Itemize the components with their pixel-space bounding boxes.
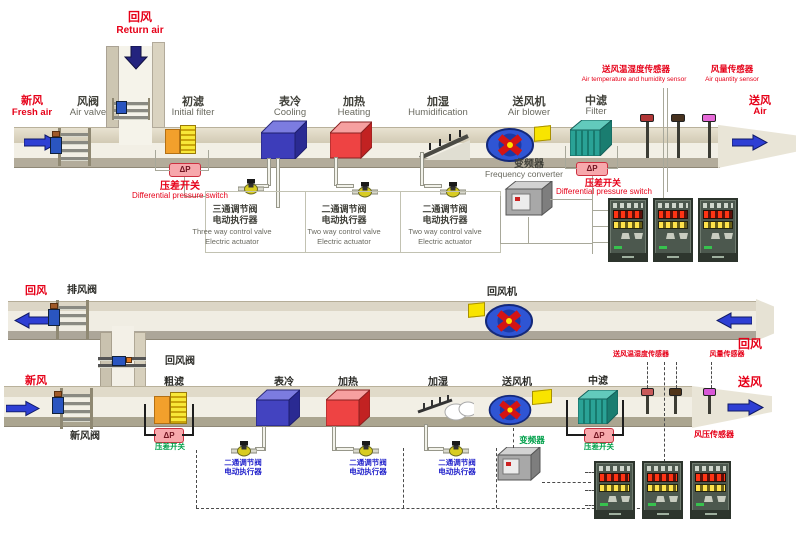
air-valve-post	[88, 128, 91, 166]
pressure-switch-left-label-en: Differential pressure switch	[115, 192, 245, 201]
wire	[155, 150, 156, 171]
temp-humidity-sensor-probe	[671, 114, 685, 158]
air-quantity-sensor-probe	[702, 114, 716, 158]
fresh-air-label: 新风	[12, 375, 60, 387]
controller-panel[interactable]	[690, 461, 731, 519]
air-quantity-sensor-label-en: Air quantity sensor	[694, 76, 770, 83]
up-button[interactable]	[608, 496, 617, 502]
supply-air-right-label: 送风	[730, 376, 770, 389]
dashed-wire	[496, 448, 497, 508]
controller-buttons[interactable]	[703, 232, 733, 240]
return-inlet-arrow-icon	[716, 312, 752, 329]
return-air-valve-label: 回风阀	[156, 356, 204, 367]
sensor-head	[641, 388, 654, 396]
sensor-head	[703, 388, 716, 396]
controller-status-led	[704, 246, 712, 249]
fresh-air-label-en: Fresh air	[0, 108, 64, 119]
temp-humidity-sensor-probe	[641, 388, 654, 414]
return-air-arrow-icon	[124, 46, 148, 70]
blower-outlet	[534, 125, 551, 142]
controller-buttons[interactable]	[695, 495, 726, 503]
heating-label: 加热	[326, 377, 370, 388]
sensor-head	[669, 388, 682, 396]
controller-red-display	[695, 473, 726, 482]
controller-panel[interactable]	[594, 461, 635, 519]
wire	[192, 404, 194, 436]
air-pressure-sensor-label: 风压传感器	[686, 431, 742, 440]
return-air-damper-actuator	[112, 356, 126, 366]
dashed-wire	[664, 362, 665, 462]
pressure-switch-box: ΔP	[154, 428, 184, 443]
down-button[interactable]	[621, 496, 630, 502]
controller-red-display	[658, 210, 688, 219]
pipe	[334, 157, 338, 186]
coarse-filter-label: 粗滤	[152, 377, 196, 388]
mid-filter	[570, 120, 612, 156]
brand-mark	[657, 513, 669, 515]
controller-status-led	[696, 503, 704, 506]
controller-panel[interactable]	[608, 198, 648, 262]
heating-coil	[326, 388, 370, 426]
controller-panel[interactable]	[698, 198, 738, 262]
wire	[592, 242, 609, 243]
brand-mark	[705, 513, 717, 515]
fresh-air-valve-label: 新风阀	[58, 431, 112, 442]
up-button[interactable]	[666, 233, 675, 239]
controller-yellow-display	[647, 484, 678, 492]
pressure-switch-label: 压差开关	[578, 443, 620, 451]
controller-yellow-display	[658, 221, 688, 229]
controller-footer	[610, 253, 646, 260]
controller-indicator-row	[613, 203, 643, 208]
valve-group-label: 二通调节阀	[307, 204, 381, 214]
dashed-wire	[647, 362, 648, 388]
sensor-stem	[646, 120, 649, 158]
controller-status-led	[648, 503, 656, 506]
sensor-head	[640, 114, 654, 122]
temp-humidity-sensor-label-en: Air temperature and humidity sensor	[570, 76, 698, 83]
fresh-air-valve-blade	[63, 394, 90, 397]
dashed-wire	[542, 482, 591, 483]
return-air-right-label: 回风	[730, 338, 770, 351]
controller-footer	[655, 253, 691, 260]
brand-mark	[609, 513, 621, 515]
valve-group-label: Electric actuator	[308, 238, 380, 246]
controller-buttons[interactable]	[658, 232, 688, 240]
controller-red-display	[703, 210, 733, 219]
pressure-switch-box: ΔP	[576, 162, 608, 176]
controller-status-led	[659, 246, 667, 249]
controller-footer	[596, 510, 633, 517]
temp-humidity-sensor-probe	[669, 388, 682, 414]
down-button[interactable]	[634, 233, 643, 239]
wire	[550, 199, 592, 200]
air-quantity-sensor-probe	[703, 388, 716, 414]
supply-fan-outlet	[532, 389, 552, 405]
return-damper-blade	[114, 116, 148, 119]
fresh-air-valve-actuator	[52, 397, 64, 414]
controller-buttons[interactable]	[599, 495, 630, 503]
air-quantity-sensor-label: 风量传感器	[702, 351, 752, 359]
wire	[663, 88, 664, 198]
controller-indicator-row	[647, 466, 678, 471]
exhaust-valve-post	[86, 300, 89, 339]
cooling-coil	[261, 117, 307, 159]
valve-group-label: 三通调节阀	[198, 204, 272, 214]
dashed-wire	[711, 362, 712, 388]
wire	[592, 226, 609, 227]
fresh-air-valve-blade	[63, 410, 90, 413]
coarse-filter-frame	[154, 396, 170, 424]
valve-group-label: Electric actuator	[196, 238, 268, 246]
air-blower-label-en: Air blower	[500, 108, 558, 119]
sensor-head	[702, 114, 716, 122]
return-air-damper-cap	[126, 357, 132, 363]
wire	[155, 170, 170, 171]
sensor-stem	[708, 394, 711, 414]
mid-filter-label-en: Filter	[578, 107, 614, 118]
air-quantity-sensor-label-zh: 风量传感器	[698, 65, 766, 75]
up-button[interactable]	[711, 233, 720, 239]
sensor-stem	[708, 120, 711, 158]
return-air-label-zh: 回风	[112, 11, 168, 24]
air-valve-label-en: Air valve	[58, 108, 118, 119]
fresh-air-valve-blade	[63, 418, 90, 421]
return-air-label: 回风	[12, 285, 60, 297]
controller-indicator-row	[695, 466, 726, 471]
wire	[144, 434, 156, 436]
controller-yellow-display	[695, 484, 726, 492]
down-button[interactable]	[679, 233, 688, 239]
initial-filter-label-en: Initial filter	[158, 108, 228, 119]
heating-coil	[330, 119, 372, 159]
sensor-stem	[646, 394, 649, 414]
cooling-coil	[256, 388, 300, 426]
wire	[500, 243, 592, 244]
bottom-diagram: ΔP ΔP	[0, 270, 800, 539]
wire	[622, 400, 624, 436]
valve-group-label: Three way control valve	[184, 228, 280, 236]
pressure-switch-right-label-en: Differential pressure switch	[546, 188, 662, 197]
two-way-valve-icon	[353, 438, 379, 457]
pipe	[267, 158, 271, 186]
exhaust-valve-actuator	[48, 309, 60, 326]
top-diagram: ΔP ΔP	[0, 0, 800, 270]
brand-mark	[712, 256, 724, 258]
wire	[500, 196, 501, 243]
valve-group-label: 电动执行器	[428, 468, 486, 476]
wire	[566, 434, 586, 436]
controller-yellow-display	[703, 221, 733, 229]
riser-right-wall	[134, 332, 146, 388]
controller-yellow-display	[599, 484, 630, 492]
initial-filter-frame	[165, 129, 180, 154]
return-damper-post	[148, 98, 150, 120]
wire	[182, 434, 194, 436]
valve-group-label: 二通调节阀	[408, 204, 482, 214]
valve-group-label: Electric actuator	[409, 238, 481, 246]
cooling-label: 表冷	[262, 377, 306, 388]
dashed-wire	[676, 362, 677, 388]
temp-humidity-sensor-label: 送风温湿度传感器	[610, 351, 672, 359]
fresh-air-valve-post	[90, 388, 93, 429]
valve-group-label: 电动执行器	[214, 468, 272, 476]
sensor-stem	[677, 120, 680, 158]
wire	[592, 210, 609, 211]
humidifier	[416, 394, 474, 424]
humidification-label: 加湿	[416, 377, 460, 388]
valve-group-label: 电动执行器	[198, 215, 272, 225]
initial-filter-media	[180, 125, 196, 154]
down-button[interactable]	[724, 233, 733, 239]
controller-footer	[700, 253, 736, 260]
hvac-monitoring-diagram: ΔP ΔP	[0, 0, 800, 539]
humidification-label-en: Humidification	[396, 108, 480, 119]
exhaust-valve-label: 排风阀	[54, 285, 110, 296]
supply-fan-label: 送风机	[490, 377, 544, 388]
wire	[617, 146, 618, 168]
coarse-filter-media	[170, 392, 187, 424]
return-duct-top	[8, 301, 756, 311]
pressure-switch-box: ΔP	[169, 163, 201, 177]
blower-fan-icon	[484, 127, 536, 163]
supply-fan-icon	[486, 394, 534, 426]
wire	[565, 146, 566, 168]
controller-buttons[interactable]	[647, 495, 678, 503]
heating-label-en: Heating	[330, 108, 378, 119]
controller-indicator-row	[599, 466, 630, 471]
mid-filter-label: 中滤	[580, 376, 616, 387]
mid-filter	[578, 390, 618, 424]
wire	[565, 168, 577, 169]
controller-red-display	[613, 210, 643, 219]
pressure-switch-box: ΔP	[584, 428, 614, 443]
dashed-wire	[196, 508, 660, 509]
duct-bottom-face	[14, 158, 720, 168]
down-button[interactable]	[717, 496, 726, 502]
valve-group-label: 电动执行器	[339, 468, 397, 476]
wire	[144, 404, 146, 436]
wire	[607, 168, 618, 169]
two-way-valve-icon	[443, 438, 469, 457]
brand-mark	[667, 256, 679, 258]
valve-group-label: 电动执行器	[307, 215, 381, 225]
frequency-converter-box	[496, 447, 542, 481]
controller-red-display	[599, 473, 630, 482]
two-way-valve-icon	[231, 438, 257, 457]
temp-humidity-sensor-label-zh: 送风温湿度传感器	[586, 65, 686, 75]
return-fan-outlet	[468, 302, 485, 318]
valve-group-label: Two way control valve	[397, 228, 493, 236]
air-valve-blade	[61, 133, 88, 136]
wire	[528, 217, 529, 243]
pipe	[420, 152, 424, 186]
up-button[interactable]	[621, 233, 630, 239]
up-button[interactable]	[704, 496, 713, 502]
air-valve-blade	[61, 149, 88, 152]
frequency-converter-label: 变频器	[512, 436, 552, 446]
sensor-stem	[674, 394, 677, 414]
controller-buttons[interactable]	[613, 232, 643, 240]
sensor-head	[671, 114, 685, 122]
wire	[612, 434, 624, 436]
controller-indicator-row	[658, 203, 688, 208]
fresh-air-label-zh: 新风	[6, 95, 58, 107]
controller-footer	[692, 510, 729, 517]
fresh-air-inlet-arrow-icon	[6, 400, 40, 417]
brand-mark	[622, 256, 634, 258]
return-fan-label: 回风机	[474, 287, 530, 298]
exhaust-valve-blade	[59, 322, 86, 325]
controller-footer	[644, 510, 681, 517]
air-valve-blade	[61, 141, 88, 144]
riser-left-wall	[100, 332, 112, 388]
wire	[667, 88, 668, 192]
controller-status-led	[600, 503, 608, 506]
controller-red-display	[647, 473, 678, 482]
up-button[interactable]	[656, 496, 665, 502]
supply-air-label-en: Air	[746, 107, 774, 118]
exhaust-valve-blade	[59, 314, 86, 317]
air-valve-actuator	[50, 137, 62, 154]
wire	[566, 400, 568, 436]
controller-panel[interactable]	[642, 461, 683, 519]
controller-indicator-row	[703, 203, 733, 208]
return-air-label-en: Return air	[104, 25, 176, 36]
valve-group-label: 电动执行器	[408, 215, 482, 225]
frame-divider	[305, 191, 306, 253]
temp-humidity-sensor-probe	[640, 114, 654, 158]
supply-outlet-arrow-icon	[726, 399, 766, 416]
frequency-converter-box	[504, 181, 554, 217]
pipe	[428, 447, 444, 451]
frame-divider	[400, 191, 401, 253]
cooling-label-en: Cooling	[264, 108, 316, 119]
supply-air-arrow-icon	[732, 134, 768, 151]
controller-status-led	[614, 246, 622, 249]
dashed-wire	[403, 448, 404, 508]
exhaust-valve-blade	[59, 306, 86, 309]
controller-yellow-display	[613, 221, 643, 229]
pressure-switch-label: 压差开关	[150, 443, 190, 451]
return-fan-icon	[484, 302, 534, 340]
air-valve-blade	[61, 157, 88, 160]
valve-group-label: Two way control valve	[296, 228, 392, 236]
humidifier	[416, 128, 474, 162]
down-button[interactable]	[669, 496, 678, 502]
exhaust-arrow-icon	[14, 312, 50, 329]
dashed-wire	[196, 450, 197, 508]
frequency-converter-label-en: Frequency converter	[478, 170, 570, 180]
controller-panel[interactable]	[653, 198, 693, 262]
pipe	[336, 447, 354, 451]
fresh-air-valve-blade	[63, 402, 90, 405]
wire	[200, 170, 209, 171]
return-duct-cap	[756, 299, 774, 341]
wire	[208, 150, 209, 171]
